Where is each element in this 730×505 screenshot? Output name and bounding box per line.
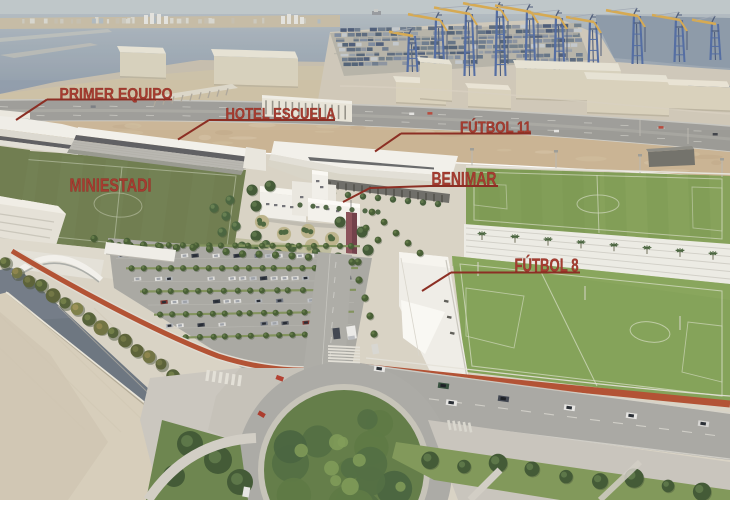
svg-text:FÚTBOL 11: FÚTBOL 11	[460, 119, 531, 137]
svg-text:BENIMAR: BENIMAR	[432, 168, 497, 189]
svg-text:PRIMER EQUIPO: PRIMER EQUIPO	[60, 86, 173, 103]
svg-text:HOTEL ESCUELA: HOTEL ESCUELA	[226, 106, 336, 123]
svg-text:MINIESTADI: MINIESTADI	[70, 175, 152, 196]
svg-text:FÚTBOL 8: FÚTBOL 8	[515, 255, 579, 276]
